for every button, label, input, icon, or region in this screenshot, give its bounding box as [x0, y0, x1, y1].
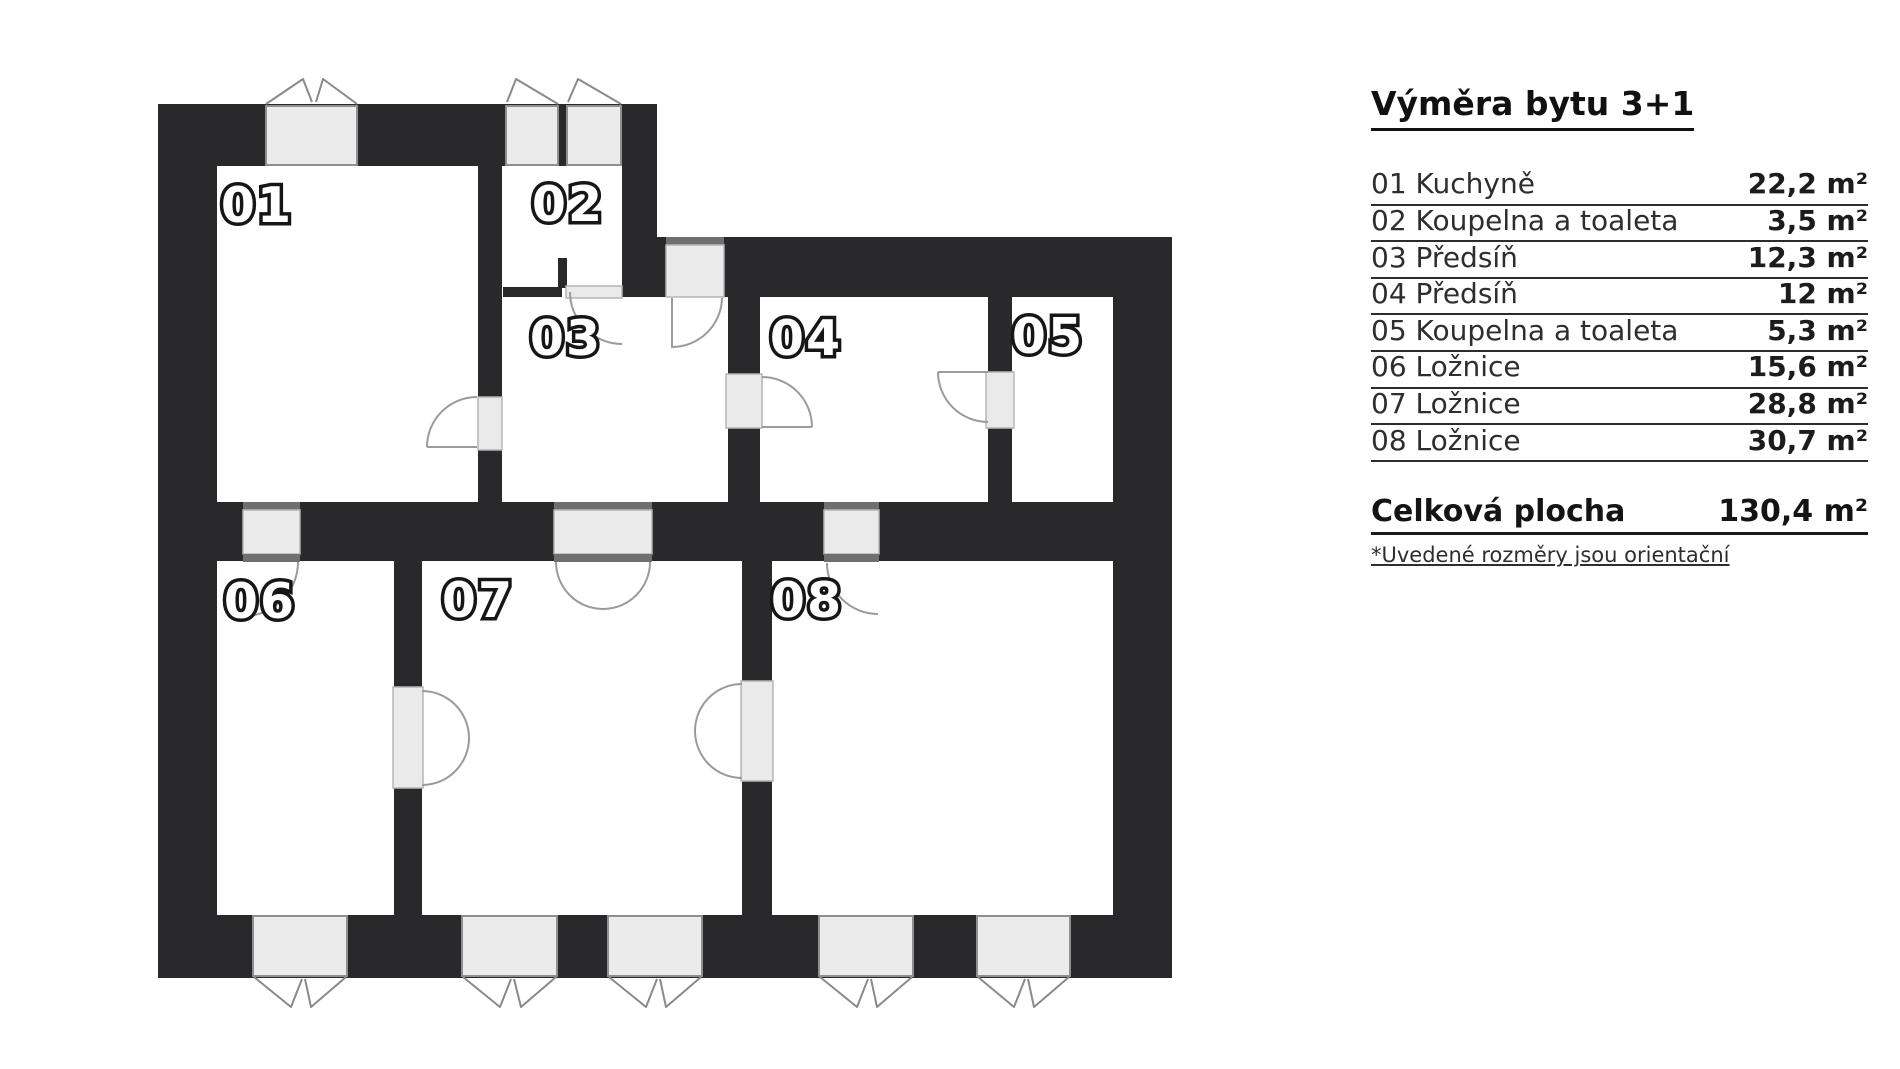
door-03-07-frame-top: [554, 502, 652, 510]
walls: [158, 104, 1172, 978]
legend-row: 06 Ložnice 15,6 m²: [1371, 352, 1868, 389]
legend-row-label: 08 Ložnice: [1371, 425, 1521, 457]
legend-row-value: 30,7 m²: [1748, 425, 1868, 457]
legend-row: 05 Koupelna a toaleta 5,3 m²: [1371, 315, 1868, 352]
window-room01-top: [266, 106, 357, 165]
window-room08-bottom-left: [819, 916, 913, 976]
window-mark-icon: [820, 977, 912, 1007]
wall-06-07-upper: [394, 561, 422, 687]
door-02-03: [566, 286, 622, 298]
legend-row: 02 Koupelna a toaleta 3,5 m²: [1371, 206, 1868, 243]
wall-mid-d: [879, 502, 1113, 561]
room-label-03: 03: [530, 310, 602, 367]
window-mark-icon: [507, 79, 558, 104]
legend-row-value: 12 m²: [1778, 278, 1868, 310]
wall-room02-right: [622, 160, 657, 297]
legend-row: 08 Ložnice 30,7 m²: [1371, 425, 1868, 462]
wall-01-03-upper: [478, 166, 502, 397]
door-04-05: [986, 372, 1014, 428]
door-01-03: [478, 397, 502, 450]
legend-row-value: 15,6 m²: [1748, 351, 1868, 383]
door-07-08: [741, 681, 773, 781]
legend-row-label: 01 Kuchyně: [1371, 168, 1535, 200]
legend-row-label: 02 Koupelna a toaleta: [1371, 205, 1678, 237]
window-mark-icon: [463, 977, 556, 1007]
door-swing-icon: [427, 397, 477, 447]
room-label-01: 01: [221, 177, 293, 234]
wall-left-exterior: [158, 104, 217, 978]
wall-mid-c: [652, 502, 824, 561]
window-mark-icon: [254, 977, 346, 1007]
door-04-08-frame-top: [824, 502, 879, 510]
window-room06-bottom: [253, 916, 347, 976]
wall-mid-b: [300, 502, 554, 561]
legend-row: 03 Předsíň 12,3 m²: [1371, 242, 1868, 279]
legend-title: Výměra bytu 3+1: [1371, 84, 1694, 131]
entrance-door: [666, 245, 724, 297]
window-mark-icon: [266, 79, 357, 104]
legend-total-label: Celková plocha: [1371, 494, 1625, 529]
door-01-06-frame-bottom: [243, 554, 300, 562]
wall-04-05-lower: [988, 428, 1012, 503]
room-label-08: 08: [771, 572, 843, 629]
room-label-02: 02: [532, 176, 604, 233]
wall-03-04-upper: [728, 297, 760, 374]
wall-03-04-lower: [728, 428, 760, 503]
window-room07-bottom-right: [608, 916, 702, 976]
door-swing-icon: [556, 562, 650, 609]
legend-row-label: 07 Ložnice: [1371, 388, 1521, 420]
door-03-07: [554, 510, 652, 554]
legend-row-label: 05 Koupelna a toaleta: [1371, 315, 1678, 347]
legend-row: 04 Předsíň 12 m²: [1371, 279, 1868, 316]
window-room08-bottom-right: [977, 916, 1070, 976]
wall-04-05-upper: [988, 297, 1012, 372]
wall-02-bottom: [503, 287, 562, 297]
wall-07-08-lower: [742, 781, 772, 915]
window-room02-top-left: [506, 106, 558, 165]
wall-top-right-exterior-b: [724, 237, 1172, 297]
legend: Výměra bytu 3+1 01 Kuchyně 22,2 m² 02 Ko…: [1371, 0, 1868, 1069]
legend-row: 01 Kuchyně 22,2 m²: [1371, 169, 1868, 206]
legend-row-value: 12,3 m²: [1748, 242, 1868, 274]
door-swing-icon: [672, 298, 722, 347]
door-swing-icon: [762, 377, 812, 427]
door-03-04: [726, 374, 762, 428]
door-03-07-frame-bottom: [554, 554, 652, 562]
window-mark-icon: [609, 977, 701, 1007]
legend-total-row: Celková plocha 130,4 m²: [1371, 497, 1868, 535]
legend-row-value: 5,3 m²: [1767, 315, 1868, 347]
entrance-door-frame: [666, 237, 724, 245]
floor-plan-page: 01 02 03 04 05 06 07 08 Výměra bytu 3+1 …: [0, 0, 1900, 1069]
window-room07-bottom-left: [462, 916, 557, 976]
legend-total-value: 130,4 m²: [1718, 494, 1868, 529]
wall-right-exterior: [1113, 237, 1172, 978]
window-mark-icon: [568, 79, 621, 104]
wall-06-07-lower: [394, 788, 422, 915]
door-04-08: [824, 510, 879, 554]
window-mark-icon: [978, 977, 1069, 1007]
legend-row-value: 28,8 m²: [1748, 388, 1868, 420]
door-swing-icon: [422, 691, 469, 785]
room-label-06: 06: [224, 573, 296, 630]
wall-01-03-lower: [478, 450, 502, 503]
legend-row-value: 22,2 m²: [1748, 168, 1868, 200]
legend-row-label: 04 Předsíň: [1371, 278, 1518, 310]
legend-rows: 01 Kuchyně 22,2 m² 02 Koupelna a toaleta…: [1371, 169, 1868, 462]
legend-row-label: 03 Předsíň: [1371, 242, 1518, 274]
wall-07-08-upper: [742, 561, 772, 681]
door-06-07: [393, 687, 423, 788]
wall-top-right-exterior-a: [657, 237, 666, 297]
legend-footnote: *Uvedené rozměry jsou orientační: [1371, 543, 1729, 567]
legend-row: 07 Ložnice 28,8 m²: [1371, 389, 1868, 426]
door-01-06: [243, 510, 300, 554]
room-label-04: 04: [770, 310, 842, 367]
door-04-08-frame-bottom: [824, 554, 879, 562]
door-swing-icon: [695, 684, 742, 778]
legend-row-label: 06 Ložnice: [1371, 351, 1521, 383]
window-room02-top-right: [567, 106, 621, 165]
door-01-06-frame-top: [243, 502, 300, 510]
room-label-07: 07: [442, 572, 514, 629]
wall-02-door-stub: [558, 258, 567, 288]
door-swing-icon: [938, 372, 988, 422]
room-label-05: 05: [1012, 308, 1084, 365]
legend-row-value: 3,5 m²: [1767, 205, 1868, 237]
wall-mid-a: [217, 502, 243, 561]
